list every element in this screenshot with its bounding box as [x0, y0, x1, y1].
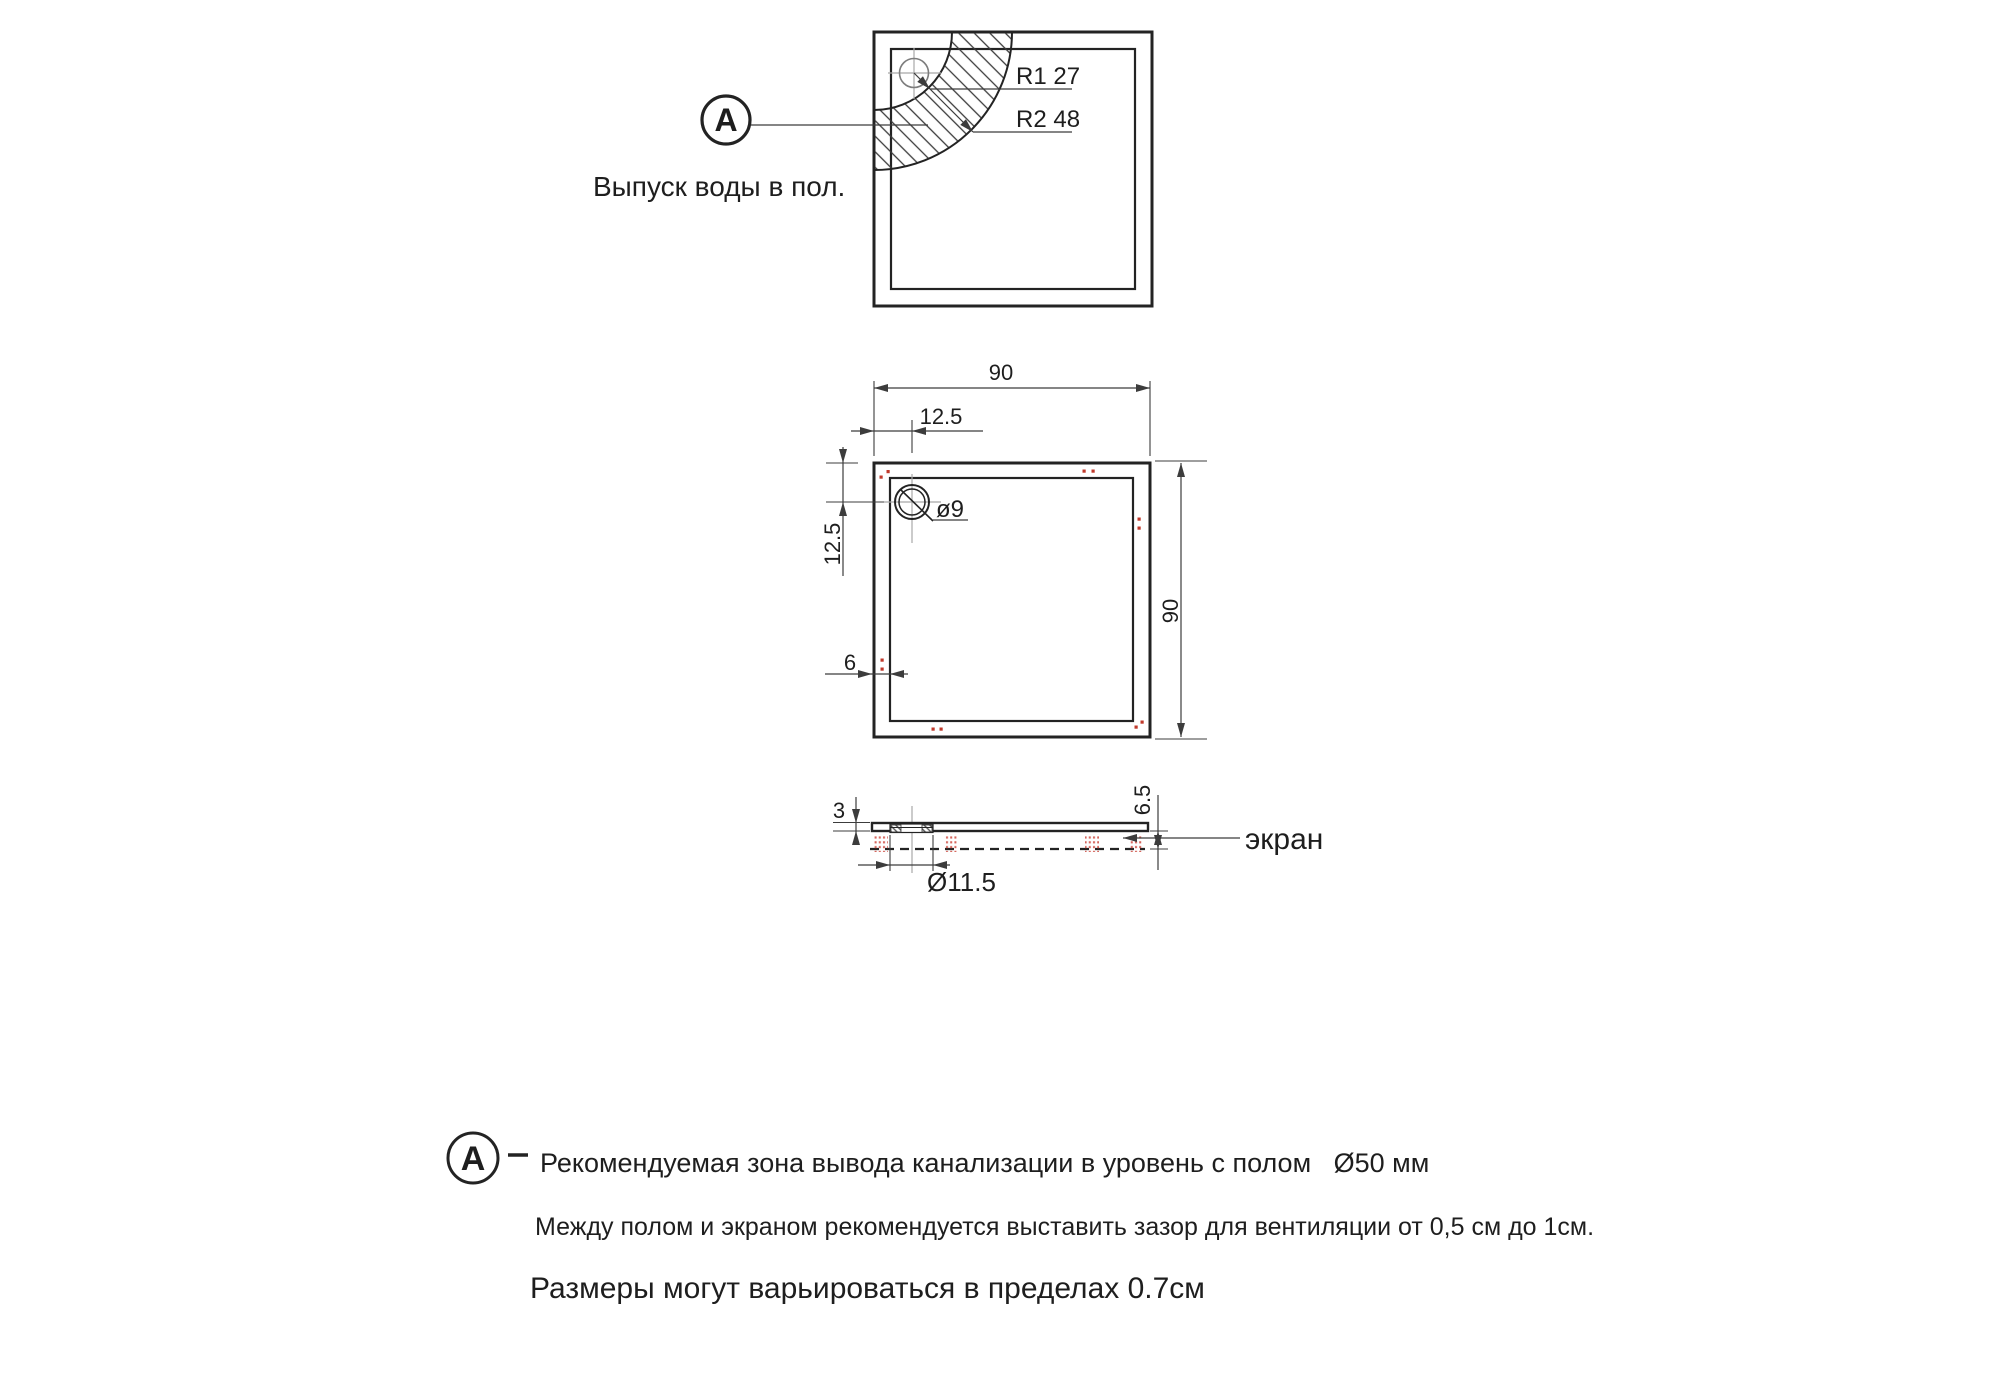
drain-dia-label: ø9 — [936, 496, 964, 523]
screen-label: экран — [1245, 823, 1323, 856]
height-label: 90 — [1158, 599, 1183, 623]
note-line2: Между полом и экраном рекомендуется выст… — [535, 1213, 1594, 1241]
r2-label: R2 48 — [1016, 106, 1080, 133]
offsety-label: 12.5 — [820, 523, 845, 566]
background — [0, 0, 2000, 1398]
thickness-label: 3 — [833, 798, 845, 823]
r1-label: R1 27 — [1016, 63, 1080, 90]
note-callout-a-label: A — [461, 1140, 486, 1178]
drain-trap-flange-left — [891, 825, 901, 832]
drainhole-label: Ø11.5 — [927, 867, 996, 897]
top-view-caption: Выпуск воды в пол. — [593, 171, 845, 202]
page: R1 27 R2 48 A Выпуск воды в пол. 90 12.5 — [0, 0, 2000, 1398]
wall-label: 6 — [844, 650, 856, 675]
width-label: 90 — [989, 360, 1013, 385]
callout-a-label: A — [714, 102, 737, 138]
drawing-canvas: R1 27 R2 48 A Выпуск воды в пол. 90 12.5 — [0, 0, 2000, 1398]
note-line3: Размеры могут варьироваться в пределах 0… — [530, 1272, 1205, 1305]
offsetx-label: 12.5 — [920, 404, 963, 429]
drain-trap-flange-right — [922, 825, 932, 832]
note-line1: Рекомендуемая зона вывода канализации в … — [540, 1148, 1429, 1178]
totalheight-label: 6.5 — [1130, 785, 1155, 816]
